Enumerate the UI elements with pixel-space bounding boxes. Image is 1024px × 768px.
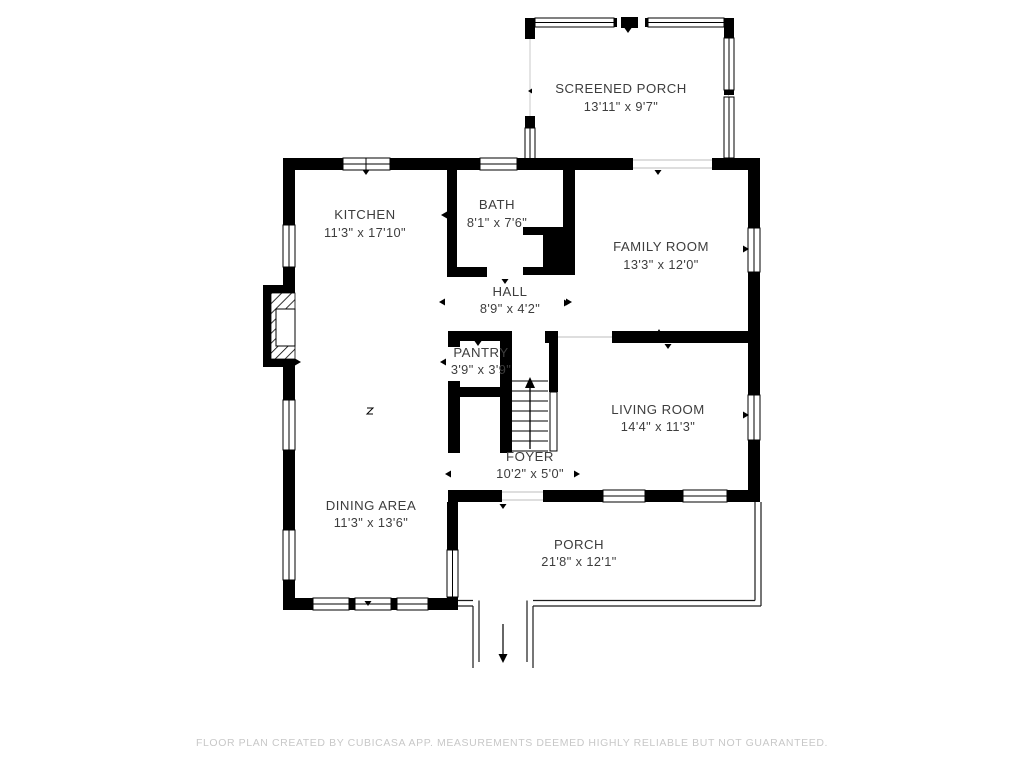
fireplace-firebox bbox=[276, 309, 295, 346]
stair-right-wall bbox=[549, 331, 558, 392]
family-room-right-window bbox=[748, 228, 760, 272]
sp-post-right bbox=[724, 18, 734, 38]
room-dims-foyer: 10'2" x 5'0" bbox=[496, 466, 564, 481]
pantry-bottom-wall bbox=[448, 387, 512, 397]
dining-bottom-window-2 bbox=[355, 598, 391, 610]
kitchen-bath-wall bbox=[447, 170, 457, 267]
living-room-south-window-1 bbox=[603, 490, 645, 502]
floor-plan-page: SCREENED PORCH 13'11" x 9'7" KITCHEN 11'… bbox=[0, 0, 1024, 768]
bath-top-window bbox=[480, 158, 517, 170]
room-dims-living-room: 14'4" x 11'3" bbox=[621, 419, 695, 434]
footer-disclaimer: FLOOR PLAN CREATED BY CUBICASA APP. MEAS… bbox=[196, 737, 828, 749]
stairs-up-arrow bbox=[525, 377, 535, 449]
room-label-dining-area: DINING AREA bbox=[326, 498, 417, 513]
living-room-south-window-2 bbox=[683, 490, 727, 502]
room-label-foyer: FOYER bbox=[506, 449, 554, 464]
room-dims-porch: 21'8" x 12'1" bbox=[541, 554, 616, 569]
porch-door-marker bbox=[500, 504, 507, 509]
fireplace-marker bbox=[295, 359, 301, 366]
hall-dim-marker-left bbox=[439, 299, 445, 306]
room-label-porch: PORCH bbox=[554, 537, 604, 552]
sp-top-marker bbox=[625, 28, 632, 33]
living-room-right-window bbox=[748, 395, 760, 440]
kitchen-dim-marker bbox=[441, 212, 447, 219]
living-divider-marker-down bbox=[665, 344, 672, 349]
bath-bottom-wall bbox=[447, 267, 487, 277]
room-label-living-room: LIVING ROOM bbox=[611, 402, 704, 417]
room-label-bath: BATH bbox=[479, 197, 515, 212]
room-dims-screened-porch: 13'11" x 9'7" bbox=[584, 99, 658, 114]
room-dims-hall: 8'9" x 4'2" bbox=[480, 301, 540, 316]
foyer-dim-marker-left bbox=[445, 471, 451, 478]
room-dims-bath: 8'1" x 7'6" bbox=[467, 215, 527, 230]
porch-outline bbox=[458, 502, 761, 668]
dining-bottom-window-1 bbox=[313, 598, 349, 610]
pantry-door-marker bbox=[440, 359, 446, 366]
room-label-kitchen: KITCHEN bbox=[334, 207, 395, 222]
sp-slider-marker bbox=[655, 170, 662, 175]
dining-left-window-1 bbox=[283, 400, 295, 450]
dining-bottom-window-3 bbox=[397, 598, 428, 610]
dining-floor-marker bbox=[367, 408, 373, 414]
dining-right-window bbox=[447, 550, 458, 597]
living-family-divider-wall bbox=[612, 331, 760, 343]
room-label-screened-porch: SCREENED PORCH bbox=[555, 81, 687, 96]
room-label-pantry: PANTRY bbox=[453, 345, 508, 360]
chimney bbox=[523, 227, 575, 275]
foyer-dim-marker-right bbox=[574, 471, 580, 478]
room-dims-family-room: 13'3" x 12'0" bbox=[623, 257, 698, 272]
room-label-family-room: FAMILY ROOM bbox=[613, 239, 709, 254]
entry-steps bbox=[473, 601, 533, 669]
steps-down-arrow bbox=[499, 624, 508, 663]
sp-top-center-post bbox=[621, 17, 638, 28]
room-dims-dining-area: 11'3" x 13'6" bbox=[334, 515, 408, 530]
floor-plan-drawing: SCREENED PORCH 13'11" x 9'7" KITCHEN 11'… bbox=[0, 0, 1024, 768]
kitchen-window-marker bbox=[363, 170, 370, 175]
dining-left-window-2 bbox=[283, 530, 295, 580]
room-label-hall: HALL bbox=[493, 284, 528, 299]
bath-right-wall bbox=[563, 170, 575, 227]
stair-railing bbox=[550, 392, 557, 451]
room-dims-pantry: 3'9" x 3'9" bbox=[451, 362, 511, 377]
sp-post-left bbox=[525, 18, 535, 39]
kitchen-top-window bbox=[343, 158, 390, 170]
room-dims-kitchen: 11'3" x 17'10" bbox=[324, 225, 406, 240]
kitchen-left-window bbox=[283, 225, 295, 267]
fireplace bbox=[263, 285, 295, 367]
